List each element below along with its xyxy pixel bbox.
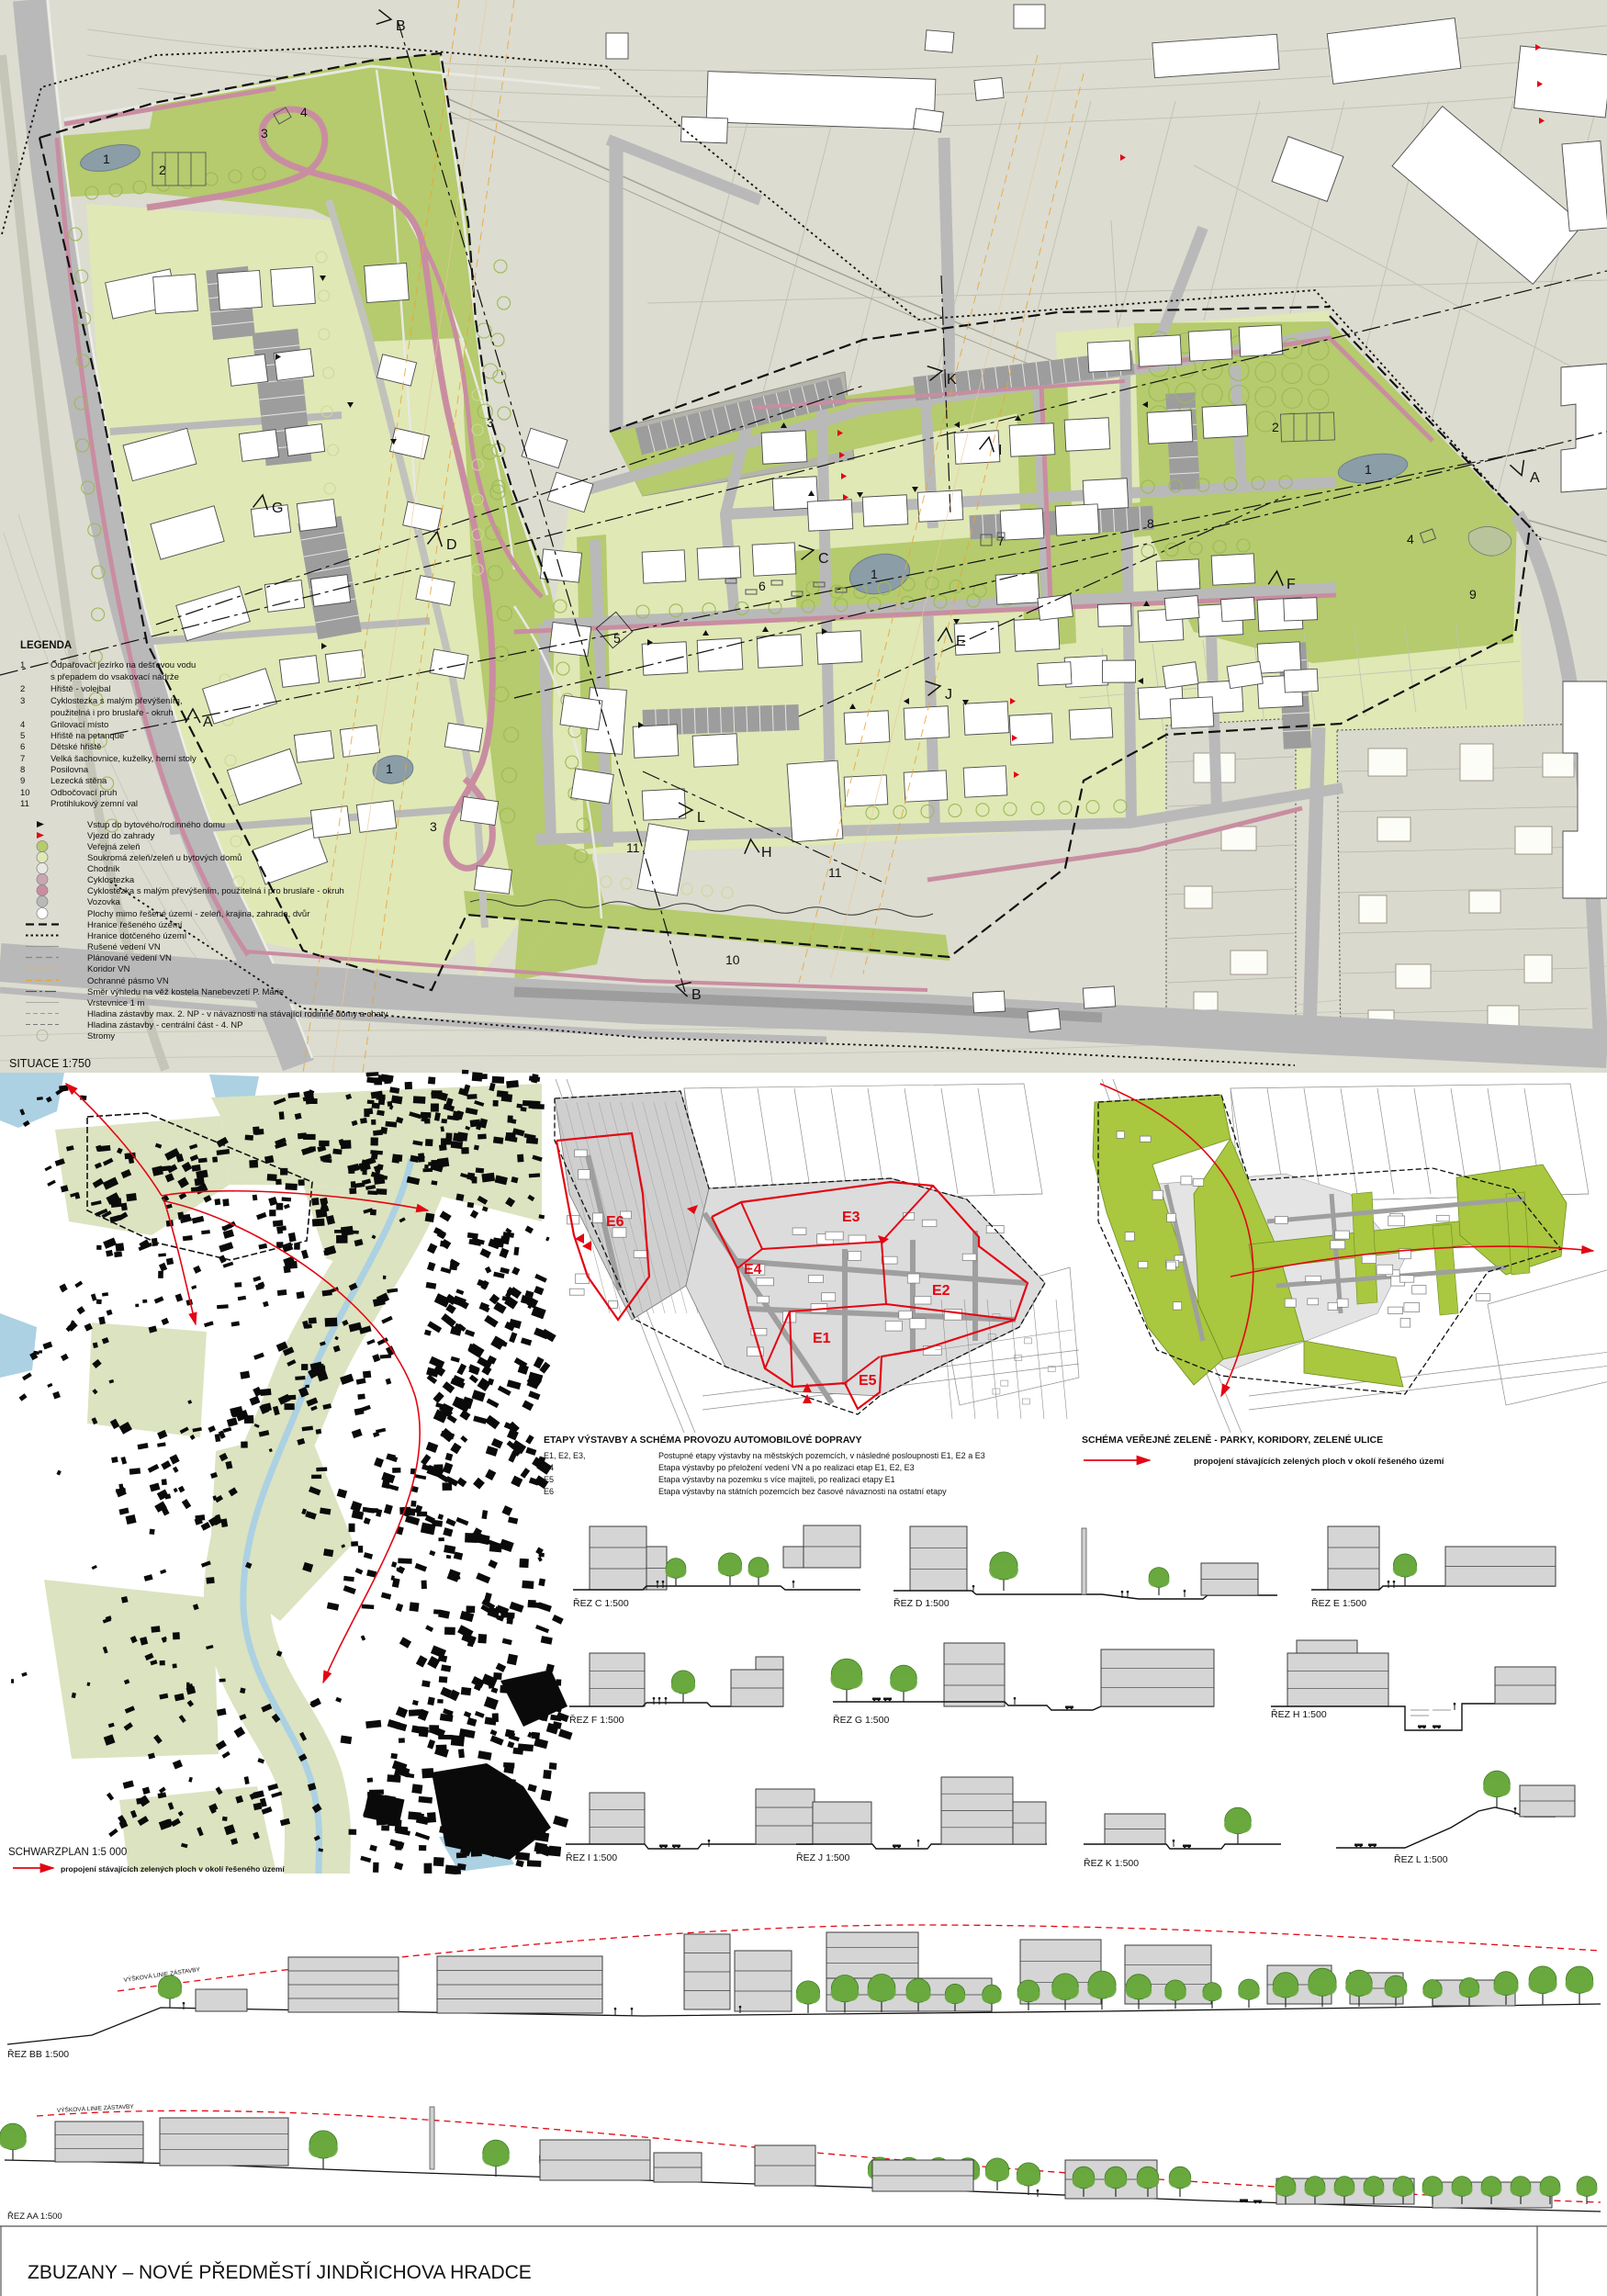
svg-text:Soukromá zeleň/zeleň u bytovýc: Soukromá zeleň/zeleň u bytových domů xyxy=(87,853,242,863)
svg-text:A: A xyxy=(1530,470,1540,486)
svg-text:ŘEZ I 1:500: ŘEZ I 1:500 xyxy=(566,1851,617,1863)
svg-text:E4: E4 xyxy=(544,1463,554,1472)
svg-text:Vstup do bytového/rodinného do: Vstup do bytového/rodinného domu xyxy=(87,820,225,830)
svg-text:1: 1 xyxy=(1365,462,1372,477)
svg-text:Hladina zástavby - centrální č: Hladina zástavby - centrální část - 4. N… xyxy=(87,1020,243,1030)
svg-text:11: 11 xyxy=(20,799,29,809)
svg-text:Plochy mimo řešené území - zel: Plochy mimo řešené území - zeleň, krajin… xyxy=(87,909,309,919)
svg-text:E5: E5 xyxy=(544,1475,554,1484)
svg-text:1: 1 xyxy=(20,660,25,670)
svg-text:Směr výhledu na věž kostela Na: Směr výhledu na věž kostela Nanebevzetí … xyxy=(87,987,284,997)
svg-text:J: J xyxy=(945,687,952,703)
svg-text:použitelná i pro bruslaře - ok: použitelná i pro bruslaře - okruh xyxy=(51,708,174,718)
svg-text:E1, E2, E3,: E1, E2, E3, xyxy=(544,1451,586,1460)
svg-text:ŘEZ F 1:500: ŘEZ F 1:500 xyxy=(569,1714,624,1726)
svg-text:SCHWARZPLAN 1:5 000: SCHWARZPLAN 1:5 000 xyxy=(8,1847,127,1858)
svg-text:SITUACE 1:750: SITUACE 1:750 xyxy=(9,1057,91,1070)
svg-text:4: 4 xyxy=(300,105,308,119)
svg-text:Etapa výstavby na pozemku s ví: Etapa výstavby na pozemku s více majitel… xyxy=(658,1475,895,1484)
svg-text:1: 1 xyxy=(103,152,110,166)
svg-text:E6: E6 xyxy=(544,1487,554,1496)
svg-text:Vjezd do zahrady: Vjezd do zahrady xyxy=(87,831,155,841)
svg-text:ŘEZ AA 1:500: ŘEZ AA 1:500 xyxy=(7,2212,62,2222)
svg-text:ZBUZANY – NOVÉ PŘEDMĚSTÍ JINDŘ: ZBUZANY – NOVÉ PŘEDMĚSTÍ JINDŘICHOVA HRA… xyxy=(28,2262,532,2283)
svg-text:Hřiště na petanque: Hřiště na petanque xyxy=(51,731,124,741)
svg-text:Stromy: Stromy xyxy=(87,1031,115,1041)
svg-text:ŘEZ J 1:500: ŘEZ J 1:500 xyxy=(796,1851,850,1863)
svg-text:10: 10 xyxy=(20,788,30,798)
svg-text:ŘEZ G 1:500: ŘEZ G 1:500 xyxy=(833,1714,889,1726)
svg-text:8: 8 xyxy=(20,765,25,775)
svg-text:6: 6 xyxy=(759,579,766,593)
svg-text:Veřejná zeleň: Veřejná zeleň xyxy=(87,842,140,852)
svg-text:Plánované vedení VN: Plánované vedení VN xyxy=(87,953,172,963)
svg-text:SCHÉMA VEŘEJNÉ ZELENĚ - PARKY,: SCHÉMA VEŘEJNÉ ZELENĚ - PARKY, KORIDORY,… xyxy=(1082,1434,1383,1446)
svg-text:E2: E2 xyxy=(932,1283,950,1299)
svg-text:K: K xyxy=(947,372,957,388)
svg-text:Odbočovací pruh: Odbočovací pruh xyxy=(51,788,117,798)
svg-text:Hranice řešeného území: Hranice řešeného území xyxy=(87,920,183,930)
svg-text:3: 3 xyxy=(261,126,268,141)
svg-text:3: 3 xyxy=(20,696,25,706)
svg-text:ŘEZ D 1:500: ŘEZ D 1:500 xyxy=(893,1597,950,1609)
svg-text:Protihlukový zemní val: Protihlukový zemní val xyxy=(51,799,138,809)
svg-text:2: 2 xyxy=(1272,420,1279,434)
svg-text:Odpařovací jezírko na dešťovou: Odpařovací jezírko na dešťovou vodu xyxy=(51,660,196,670)
svg-text:s přepadem do vsakovací nádrže: s přepadem do vsakovací nádrže xyxy=(51,672,179,682)
svg-text:L: L xyxy=(697,810,705,826)
svg-text:Velká šachovnice, kuželky, her: Velká šachovnice, kuželky, herní stoly xyxy=(51,754,197,764)
svg-text:3: 3 xyxy=(430,819,437,834)
svg-text:2: 2 xyxy=(20,684,25,694)
svg-text:5: 5 xyxy=(613,631,621,646)
svg-text:11: 11 xyxy=(828,865,842,880)
svg-text:Hřiště - volejbal: Hřiště - volejbal xyxy=(51,684,110,694)
svg-text:5: 5 xyxy=(20,731,25,741)
svg-text:ŘEZ C 1:500: ŘEZ C 1:500 xyxy=(573,1597,629,1609)
svg-text:Posilovna: Posilovna xyxy=(51,765,89,775)
svg-text:Koridor VN: Koridor VN xyxy=(87,964,130,974)
svg-text:10: 10 xyxy=(725,952,740,967)
svg-text:ŘEZ BB 1:500: ŘEZ BB 1:500 xyxy=(7,2048,69,2060)
svg-text:Cyklostezka: Cyklostezka xyxy=(87,875,135,885)
svg-text:ŘEZ E 1:500: ŘEZ E 1:500 xyxy=(1311,1597,1366,1609)
svg-text:Etapa výstavby po přeložení ve: Etapa výstavby po přeložení vedení VN a … xyxy=(658,1463,915,1472)
svg-text:Postupné etapy výstavby na měs: Postupné etapy výstavby na městských poz… xyxy=(658,1451,985,1460)
svg-text:4: 4 xyxy=(20,720,25,730)
svg-text:C: C xyxy=(818,551,829,567)
svg-text:Vrstevnice 1 m: Vrstevnice 1 m xyxy=(87,998,145,1008)
svg-text:9: 9 xyxy=(20,776,25,786)
svg-text:11: 11 xyxy=(626,840,640,855)
svg-text:ETAPY VÝSTAVBY A SCHÉMA PROVOZ: ETAPY VÝSTAVBY A SCHÉMA PROVOZU AUTOMOBI… xyxy=(544,1434,862,1446)
svg-text:Vozovka: Vozovka xyxy=(87,897,121,907)
svg-text:G: G xyxy=(272,501,283,516)
svg-text:E5: E5 xyxy=(859,1373,877,1389)
svg-text:1: 1 xyxy=(386,761,393,776)
svg-text:ŘEZ K 1:500: ŘEZ K 1:500 xyxy=(1084,1857,1139,1869)
svg-text:Lezecká stěna: Lezecká stěna xyxy=(51,776,107,786)
svg-text:propojení stávajících zelených: propojení stávajících zelených ploch v o… xyxy=(1194,1457,1444,1467)
svg-text:propojení stávajících zelených: propojení stávajících zelených ploch v o… xyxy=(61,1864,285,1874)
svg-text:E3: E3 xyxy=(842,1210,860,1225)
svg-text:B: B xyxy=(396,18,406,34)
svg-text:F: F xyxy=(1287,577,1296,592)
svg-text:Etapa výstavby na státních poz: Etapa výstavby na státních pozemcích bez… xyxy=(658,1487,947,1496)
svg-text:9: 9 xyxy=(1469,587,1477,602)
svg-text:E: E xyxy=(956,634,966,649)
svg-text:7: 7 xyxy=(997,534,1005,548)
svg-text:Rušené vedení VN: Rušené vedení VN xyxy=(87,942,161,952)
svg-text:Cyklostezka s malým převýšením: Cyklostezka s malým převýšením, použitel… xyxy=(87,886,344,896)
svg-text:H: H xyxy=(761,845,772,861)
svg-text:Cyklostezka s malým převýšením: Cyklostezka s malým převýšením, xyxy=(51,696,183,706)
svg-text:LEGENDA: LEGENDA xyxy=(20,640,72,651)
svg-text:4: 4 xyxy=(1407,532,1414,546)
svg-text:E4: E4 xyxy=(744,1262,762,1277)
svg-text:Chodník: Chodník xyxy=(87,864,120,874)
svg-text:2: 2 xyxy=(159,163,166,177)
svg-text:A: A xyxy=(203,715,213,730)
svg-text:Ochranné pásmo VN: Ochranné pásmo VN xyxy=(87,976,169,986)
svg-text:1: 1 xyxy=(871,567,878,581)
svg-text:D: D xyxy=(446,537,457,553)
svg-text:6: 6 xyxy=(20,742,25,752)
svg-text:I: I xyxy=(998,443,1002,458)
svg-text:3: 3 xyxy=(487,415,494,430)
svg-text:Hranice dotčeného území: Hranice dotčeného území xyxy=(87,931,187,941)
svg-text:E6: E6 xyxy=(606,1214,624,1230)
svg-text:7: 7 xyxy=(20,754,25,764)
svg-text:Grilovací místo: Grilovací místo xyxy=(51,720,108,730)
svg-text:8: 8 xyxy=(1147,516,1154,531)
svg-text:ŘEZ L 1:500: ŘEZ L 1:500 xyxy=(1394,1853,1448,1865)
svg-text:ŘEZ H 1:500: ŘEZ H 1:500 xyxy=(1271,1708,1327,1720)
svg-text:Hladina zástavby max. 2. NP -: Hladina zástavby max. 2. NP - v návaznos… xyxy=(87,1009,388,1019)
svg-text:E1: E1 xyxy=(813,1331,831,1346)
svg-text:B: B xyxy=(691,987,702,1003)
svg-text:Dětské hřiště: Dětské hřiště xyxy=(51,742,101,752)
